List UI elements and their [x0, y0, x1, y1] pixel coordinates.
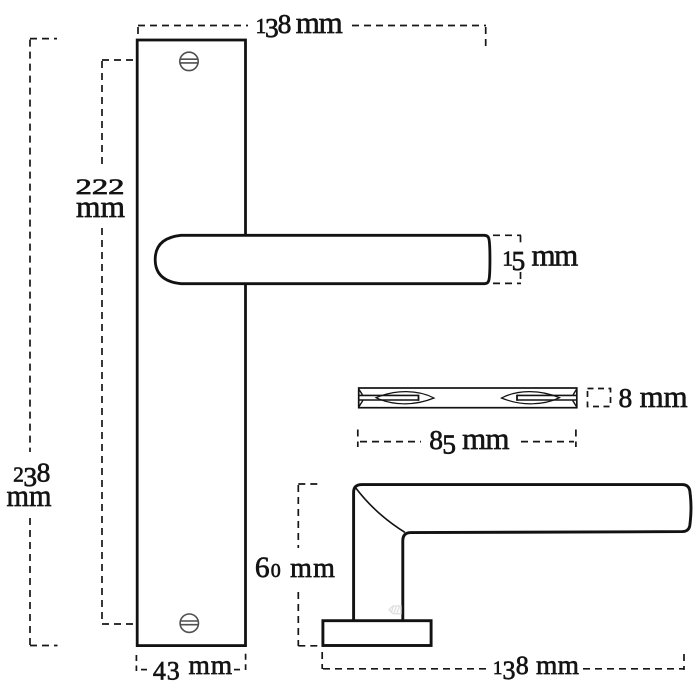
- svg-text:mm: mm: [7, 478, 52, 513]
- svg-text:8 mm: 8 mm: [619, 379, 688, 414]
- svg-text:60 mm: 60 mm: [255, 552, 336, 584]
- svg-text:85 mm: 85 mm: [429, 421, 509, 460]
- svg-text:mm: mm: [76, 189, 125, 224]
